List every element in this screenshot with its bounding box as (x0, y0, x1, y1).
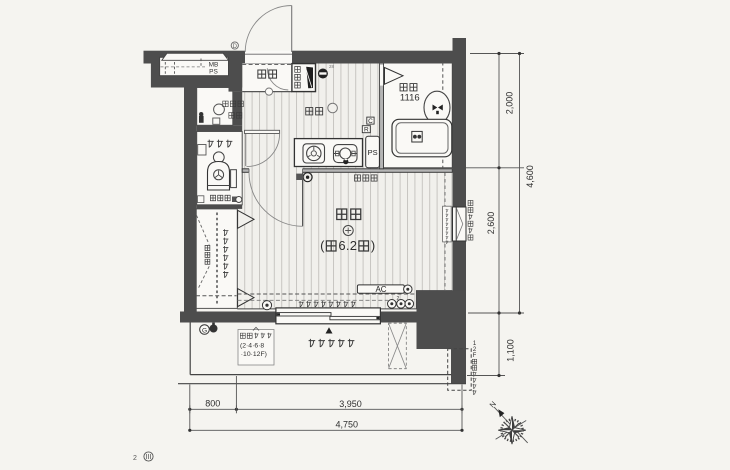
svg-text:2: 2 (133, 455, 137, 462)
svg-text:AC: AC (375, 285, 386, 294)
svg-text:MB: MB (209, 61, 219, 68)
svg-text:6: 6 (338, 238, 345, 253)
svg-text:D: D (233, 44, 238, 50)
svg-text:PS: PS (368, 148, 378, 157)
svg-text:): ) (371, 238, 375, 253)
svg-text:1116: 1116 (400, 93, 420, 104)
svg-text:2: 2 (397, 296, 400, 302)
svg-text:4,600: 4,600 (525, 165, 535, 188)
svg-text:3,950: 3,950 (339, 399, 362, 409)
svg-text:800: 800 (205, 399, 220, 409)
svg-text:4,750: 4,750 (336, 420, 359, 430)
svg-text:(2·4·6·8: (2·4·6·8 (240, 343, 264, 350)
svg-text:2: 2 (350, 238, 357, 253)
svg-text:C: C (368, 118, 373, 125)
svg-text:(: ( (320, 238, 325, 253)
svg-text:G: G (202, 327, 207, 334)
svg-text:2,000: 2,000 (505, 92, 515, 115)
svg-text:28: 28 (329, 64, 335, 69)
svg-text:2,600: 2,600 (486, 212, 496, 235)
svg-text:F: F (473, 353, 477, 359)
svg-text:1,100: 1,100 (506, 339, 516, 362)
svg-text:R: R (364, 127, 369, 134)
svg-text:PS: PS (209, 68, 218, 75)
svg-text:·10·12F): ·10·12F) (241, 351, 267, 358)
